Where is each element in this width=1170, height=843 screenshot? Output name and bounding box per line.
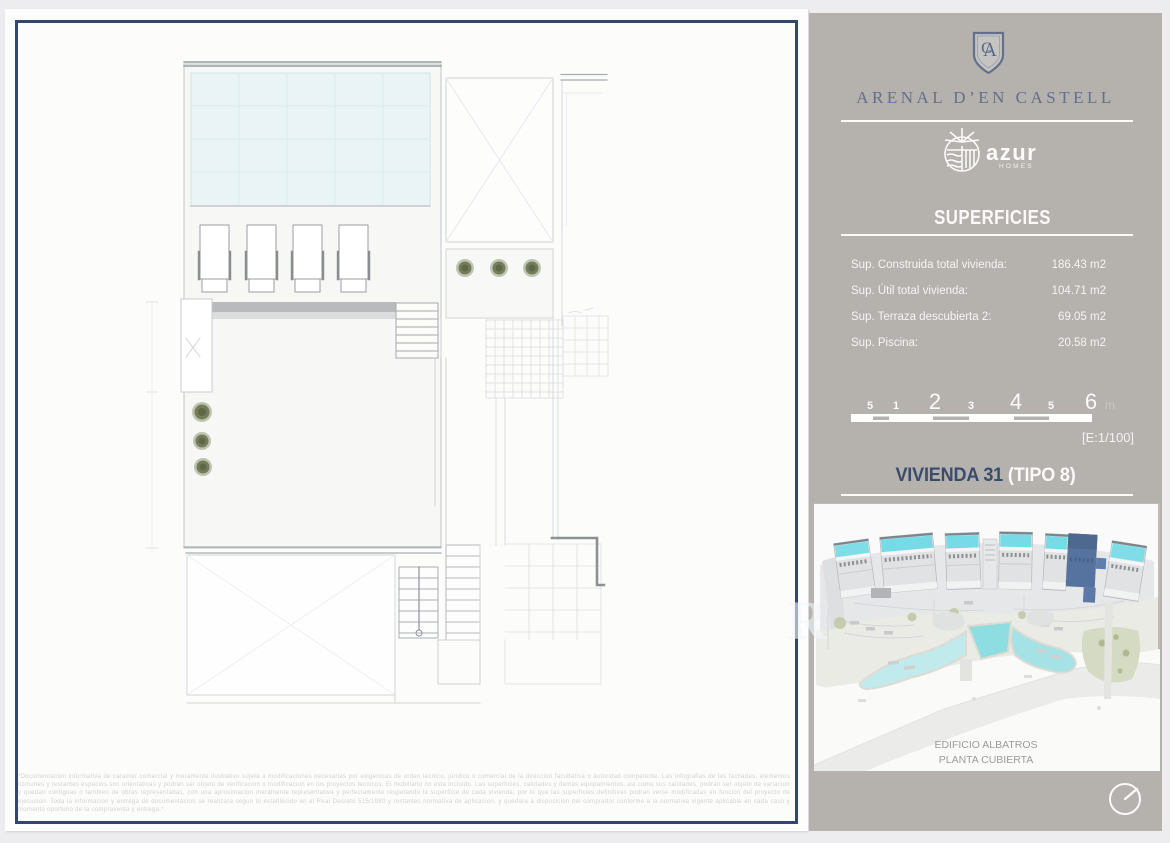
svg-text:6: 6: [1085, 389, 1097, 414]
svg-text:5: 5: [1048, 400, 1054, 412]
svg-text:C: C: [981, 40, 992, 57]
svg-text:2: 2: [929, 389, 941, 414]
svg-text:m: m: [1105, 398, 1115, 412]
svg-text:3: 3: [968, 400, 974, 412]
svg-text:5: 5: [867, 400, 873, 412]
svg-text:4: 4: [1010, 389, 1022, 414]
svg-text:1: 1: [893, 400, 899, 412]
